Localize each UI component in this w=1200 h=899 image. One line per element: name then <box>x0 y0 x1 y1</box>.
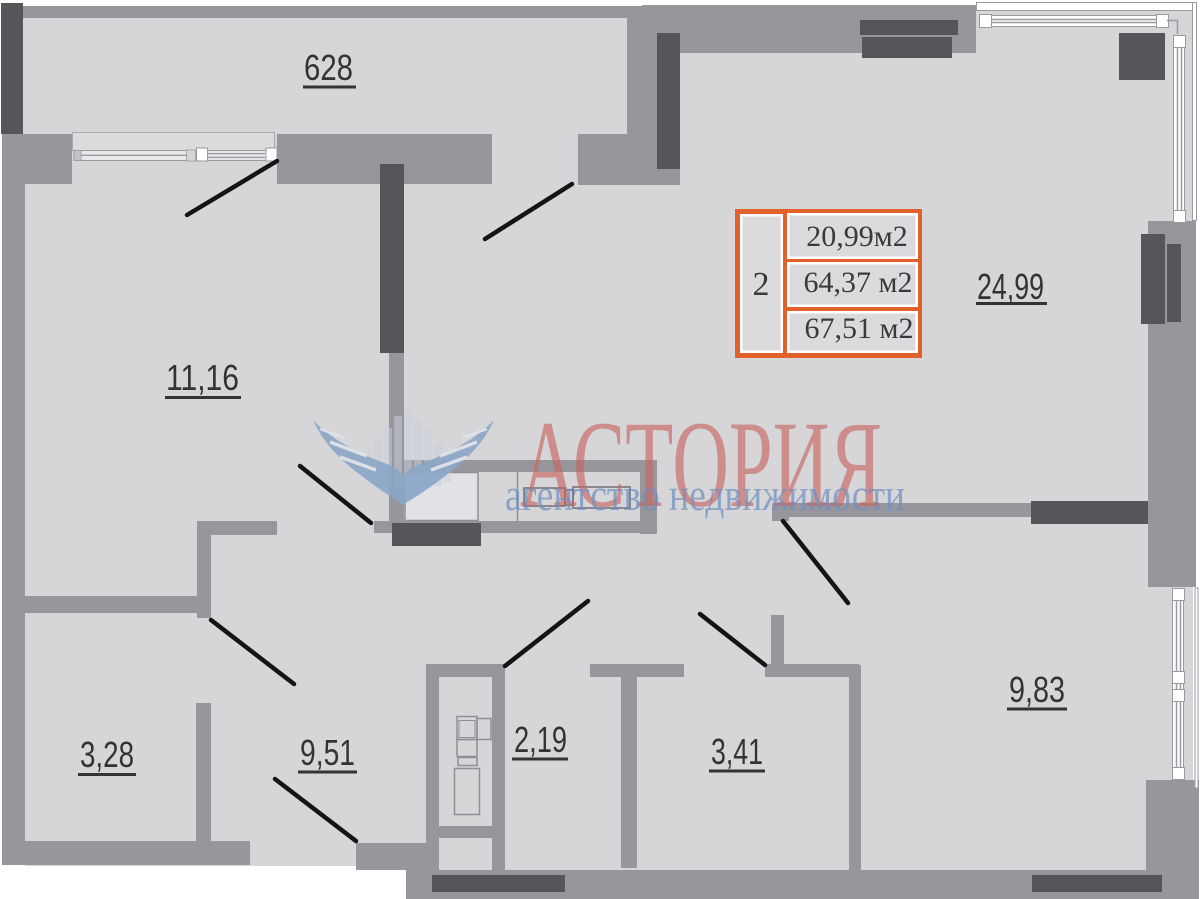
svg-text:9,51: 9,51 <box>300 732 355 773</box>
svg-text:24,99: 24,99 <box>977 266 1044 307</box>
svg-text:3,41: 3,41 <box>711 731 763 772</box>
svg-text:11,16: 11,16 <box>166 357 239 398</box>
svg-text:агентство недвижимости: агентство недвижимости <box>505 469 905 520</box>
svg-text:3,28: 3,28 <box>80 734 134 775</box>
svg-text:2: 2 <box>753 266 770 303</box>
svg-text:67,51 м2: 67,51 м2 <box>805 312 914 345</box>
svg-text:20,99м2: 20,99м2 <box>806 220 907 253</box>
svg-text:9,83: 9,83 <box>1009 669 1065 710</box>
svg-text:64,37 м2: 64,37 м2 <box>804 266 913 299</box>
svg-text:628: 628 <box>304 47 353 88</box>
svg-text:2,19: 2,19 <box>514 719 567 760</box>
